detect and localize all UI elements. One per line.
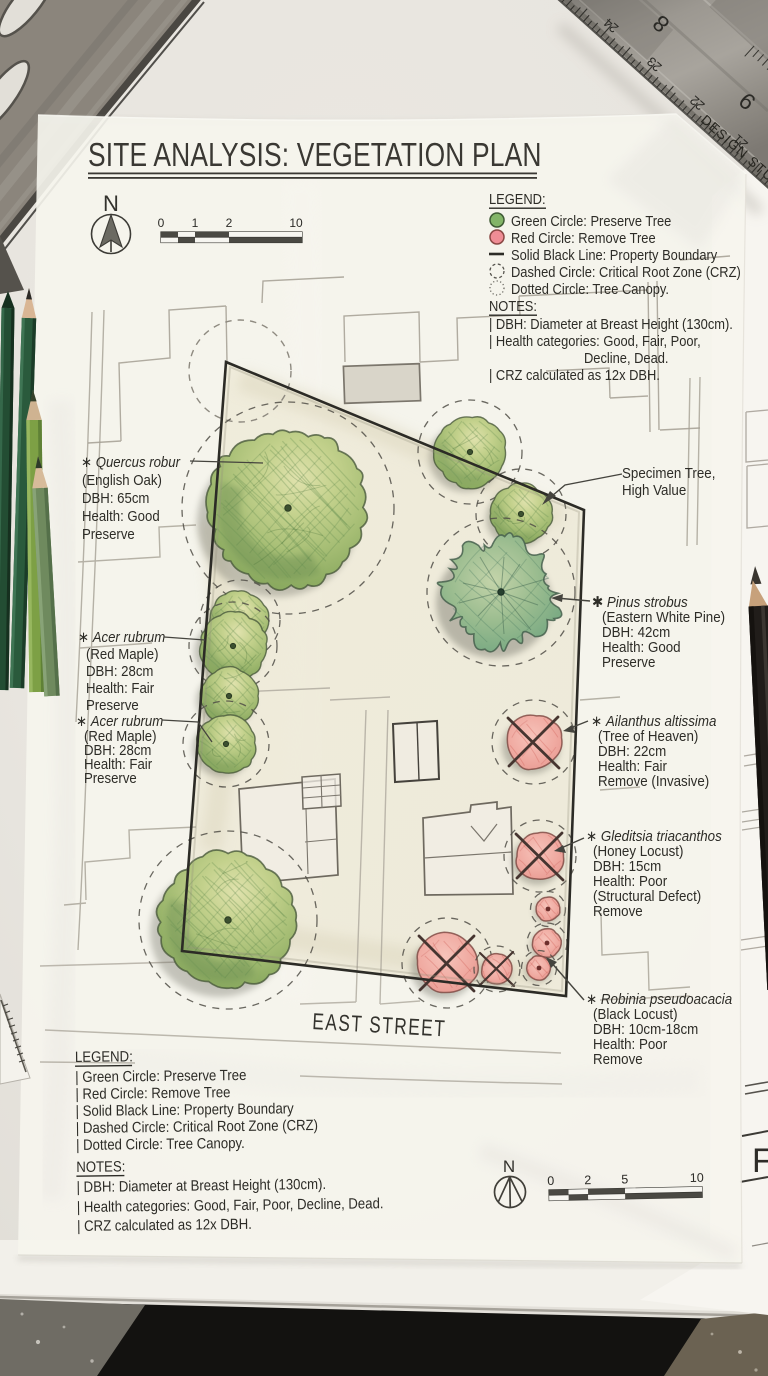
svg-text:2: 2 bbox=[584, 1173, 591, 1187]
svg-text:NOTES:: NOTES: bbox=[76, 1158, 125, 1176]
svg-text:Preserve: Preserve bbox=[602, 654, 655, 671]
svg-text:Remove: Remove bbox=[593, 903, 643, 920]
svg-text:Preserve: Preserve bbox=[82, 525, 135, 542]
svg-text:Decline, Dead.: Decline, Dead. bbox=[584, 349, 668, 366]
svg-text:| Dashed Circle: Critical Root: | Dashed Circle: Critical Root Zone (CRZ… bbox=[76, 1116, 318, 1136]
svg-text:F: F bbox=[752, 1142, 768, 1180]
svg-text:DBH: 65cm: DBH: 65cm bbox=[82, 489, 149, 506]
svg-text:Dotted Circle: Tree Canopy.: Dotted Circle: Tree Canopy. bbox=[511, 280, 669, 297]
svg-text:(Red Maple): (Red Maple) bbox=[86, 645, 159, 662]
svg-text:| CRZ calculated as 12x DBH.: | CRZ calculated as 12x DBH. bbox=[77, 1215, 252, 1234]
svg-text:| Health categories: Good, Fai: | Health categories: Good, Fair, Poor, bbox=[489, 332, 701, 349]
svg-text:1: 1 bbox=[192, 216, 199, 230]
svg-text:Preserve: Preserve bbox=[84, 769, 137, 786]
svg-text:2: 2 bbox=[226, 216, 233, 230]
svg-text:NOTES:: NOTES: bbox=[489, 297, 537, 314]
svg-text:DBH: 28cm: DBH: 28cm bbox=[86, 662, 153, 679]
svg-text:Health: Good: Health: Good bbox=[82, 507, 160, 524]
svg-text:Remove: Remove bbox=[593, 1051, 643, 1068]
svg-text:∗ Quercus robur: ∗ Quercus robur bbox=[81, 453, 181, 470]
svg-text:SITE ANALYSIS: VEGETATION PLAN: SITE ANALYSIS: VEGETATION PLAN bbox=[88, 137, 542, 173]
svg-text:Red Circle: Remove Tree: Red Circle: Remove Tree bbox=[511, 229, 656, 246]
svg-text:0: 0 bbox=[158, 216, 165, 230]
svg-text:5: 5 bbox=[621, 1172, 628, 1186]
svg-text:High Value: High Value bbox=[622, 482, 686, 499]
svg-text:N: N bbox=[503, 1157, 515, 1176]
svg-text:| Red Circle: Remove Tree: | Red Circle: Remove Tree bbox=[75, 1083, 230, 1102]
svg-text:LEGEND:: LEGEND: bbox=[489, 190, 546, 207]
svg-text:Green Circle: Preserve Tree: Green Circle: Preserve Tree bbox=[511, 212, 672, 229]
svg-text:Preserve: Preserve bbox=[86, 696, 139, 713]
svg-text:| Dotted Circle: Tree Canopy.: | Dotted Circle: Tree Canopy. bbox=[76, 1134, 245, 1153]
svg-text:| Green Circle: Preserve Tree: | Green Circle: Preserve Tree bbox=[75, 1066, 247, 1085]
svg-text:∗ Acer rubrum: ∗ Acer rubrum bbox=[78, 628, 165, 645]
svg-text:Remove (Invasive): Remove (Invasive) bbox=[598, 773, 709, 790]
svg-text:0: 0 bbox=[547, 1174, 554, 1188]
svg-text:Health: Fair: Health: Fair bbox=[86, 679, 154, 696]
svg-text:Specimen Tree,: Specimen Tree, bbox=[622, 465, 715, 482]
svg-text:| DBH: Diameter at Breast Heig: | DBH: Diameter at Breast Height (130cm)… bbox=[76, 1175, 326, 1195]
svg-text:Dashed Circle: Critical Root Z: Dashed Circle: Critical Root Zone (CRZ) bbox=[511, 263, 741, 280]
svg-text:(English Oak): (English Oak) bbox=[82, 471, 162, 488]
svg-text:| CRZ calculated as 12x DBH.: | CRZ calculated as 12x DBH. bbox=[489, 366, 660, 383]
svg-text:| DBH: Diameter at Breast Heig: | DBH: Diameter at Breast Height (130cm)… bbox=[489, 315, 733, 332]
svg-text:10: 10 bbox=[690, 1171, 704, 1185]
svg-text:LEGEND:: LEGEND: bbox=[75, 1047, 133, 1065]
svg-text:Solid Black Line: Property Bou: Solid Black Line: Property Boundary bbox=[511, 246, 717, 263]
svg-text:N: N bbox=[103, 191, 119, 216]
svg-text:10: 10 bbox=[289, 216, 303, 230]
